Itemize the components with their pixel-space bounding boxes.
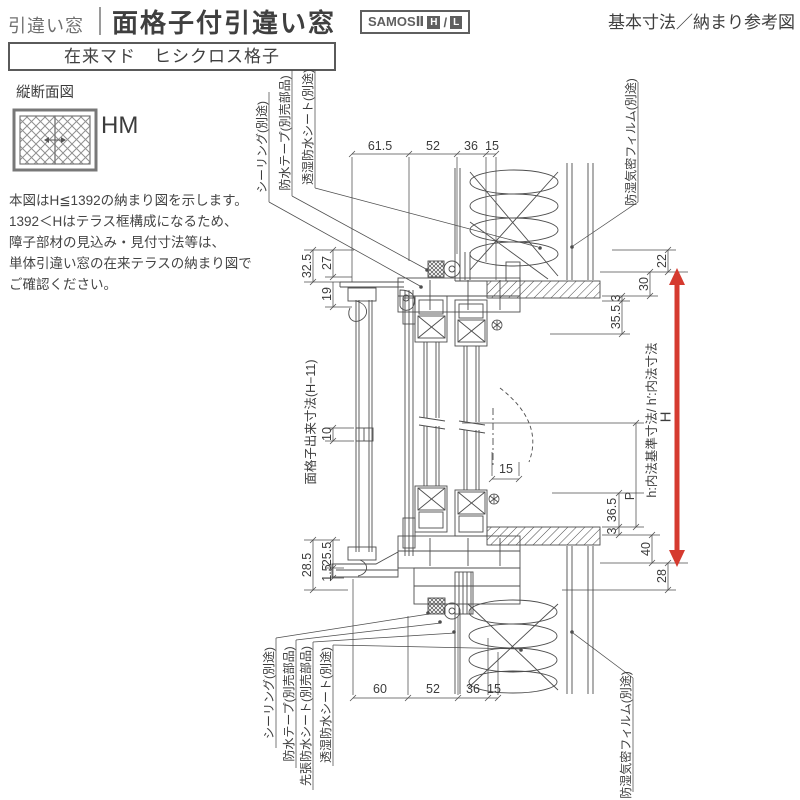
brand-h-badge: H xyxy=(427,16,440,29)
dim-label: 30 xyxy=(637,277,651,291)
brand-slash: / xyxy=(443,15,447,30)
dim-label: 15 xyxy=(485,139,499,153)
note-line: ご確認ください。 xyxy=(9,277,117,292)
corner-note: 基本寸法／納まり参考図 xyxy=(608,8,795,33)
lattice-window-icon xyxy=(14,110,96,170)
note-line: 障子部材の見込み・見付寸法等は、 xyxy=(9,234,225,250)
dim-label: 1.5 xyxy=(320,564,334,581)
sill-frame xyxy=(332,536,520,619)
leader-label-sealing-bottom: シーリング(別途) xyxy=(261,647,276,739)
dim-label: 36.5 xyxy=(605,498,619,522)
brand-badge: SAMOSⅡ H / L xyxy=(360,10,470,34)
dim-label: 36 xyxy=(466,682,480,696)
section-view-panel: 縦断面図 HM 本図はH≦1392の納まり図を示します。 1392＜Hはテラス框… xyxy=(9,84,252,292)
outer-sash xyxy=(415,296,447,532)
variant-box: 在来マド ヒシクロス格子 xyxy=(8,42,336,71)
dim-label: 60 xyxy=(373,682,387,696)
dim-label: 19 xyxy=(320,287,334,301)
height-label: H xyxy=(658,412,675,423)
dim-label: 52 xyxy=(426,682,440,696)
leader-label-breathable-sheet-top: 透湿防水シート(別途) xyxy=(300,70,315,185)
dim-label: 28 xyxy=(655,569,669,583)
leader-label-sealing-top: シーリング(別途) xyxy=(254,101,269,193)
section-view-label: 縦断面図 xyxy=(16,84,74,101)
handle-swing-arc xyxy=(493,388,533,468)
dim-label: 35.5 xyxy=(609,305,623,329)
grille-height-axis-label: 面格子出来寸法(H−11) xyxy=(303,359,318,484)
leader-label-vapor-film-bottom: 防湿気密フィルム(別途) xyxy=(618,671,633,799)
leader-label-waterproof-tape-bottom: 防水テープ(別売部品) xyxy=(281,646,296,761)
dim-label: 15 xyxy=(487,682,501,696)
dim-label: P xyxy=(623,492,637,500)
dim-label: 3 xyxy=(605,527,619,534)
brand-l-badge: L xyxy=(450,16,462,29)
catalog-page: { "header": { "category": "引違い窓", "title… xyxy=(0,0,800,800)
dim-label: 10 xyxy=(320,427,334,441)
brand-name: SAMOSⅡ xyxy=(368,14,424,30)
dim-label: 25.5 xyxy=(320,542,334,566)
note-line: 1392＜Hはテラス框構成になるため、 xyxy=(9,214,238,229)
page-title: 面格子付引違い窓 xyxy=(112,3,336,40)
technical-drawing: 縦断面図 HM 本図はH≦1392の納まり図を示します。 1392＜Hはテラス框… xyxy=(0,70,800,800)
leader-label-breathable-sheet-bottom: 透湿防水シート(別途) xyxy=(318,647,333,763)
dim-label: 27 xyxy=(320,256,334,270)
dim-label: 40 xyxy=(639,542,653,556)
break-marks xyxy=(417,417,487,433)
dim-label: 61.5 xyxy=(368,139,392,153)
leader-label-waterproof-tape-top: 防水テープ(別売部品) xyxy=(277,75,292,190)
dim-label: 28.5 xyxy=(300,553,314,577)
dim-label: 52 xyxy=(426,139,440,153)
note-line: 単体引違い窓の在来テラスの納まり図で xyxy=(9,255,252,271)
dim-label: 3 xyxy=(609,294,623,301)
dim-label: 32.5 xyxy=(300,254,314,278)
window-category-label: 引違い窓 xyxy=(8,12,84,38)
screen-track xyxy=(403,290,415,556)
note-line: 本図はH≦1392の納まり図を示します。 xyxy=(9,193,248,208)
dimension-labels: 61.5 52 36 15 60 52 36 15 32.5 27 19 10 … xyxy=(300,139,669,696)
header-divider xyxy=(99,7,101,35)
wall-section-top xyxy=(455,163,593,281)
trim-band-top xyxy=(487,281,600,298)
window-code-label: HM xyxy=(101,112,138,139)
dim-label: 36 xyxy=(464,139,478,153)
reference-symbol xyxy=(489,320,502,504)
dim-label: 15 xyxy=(499,462,513,476)
leader-label-vapor-film-top: 防湿気密フィルム(別途) xyxy=(623,78,638,206)
dim-label: 22 xyxy=(655,254,669,268)
leader-label-pre-applied-sheet-bottom: 先張防水シート(別売部品) xyxy=(298,646,313,786)
face-grille xyxy=(348,288,376,576)
inner-sash xyxy=(455,300,487,536)
